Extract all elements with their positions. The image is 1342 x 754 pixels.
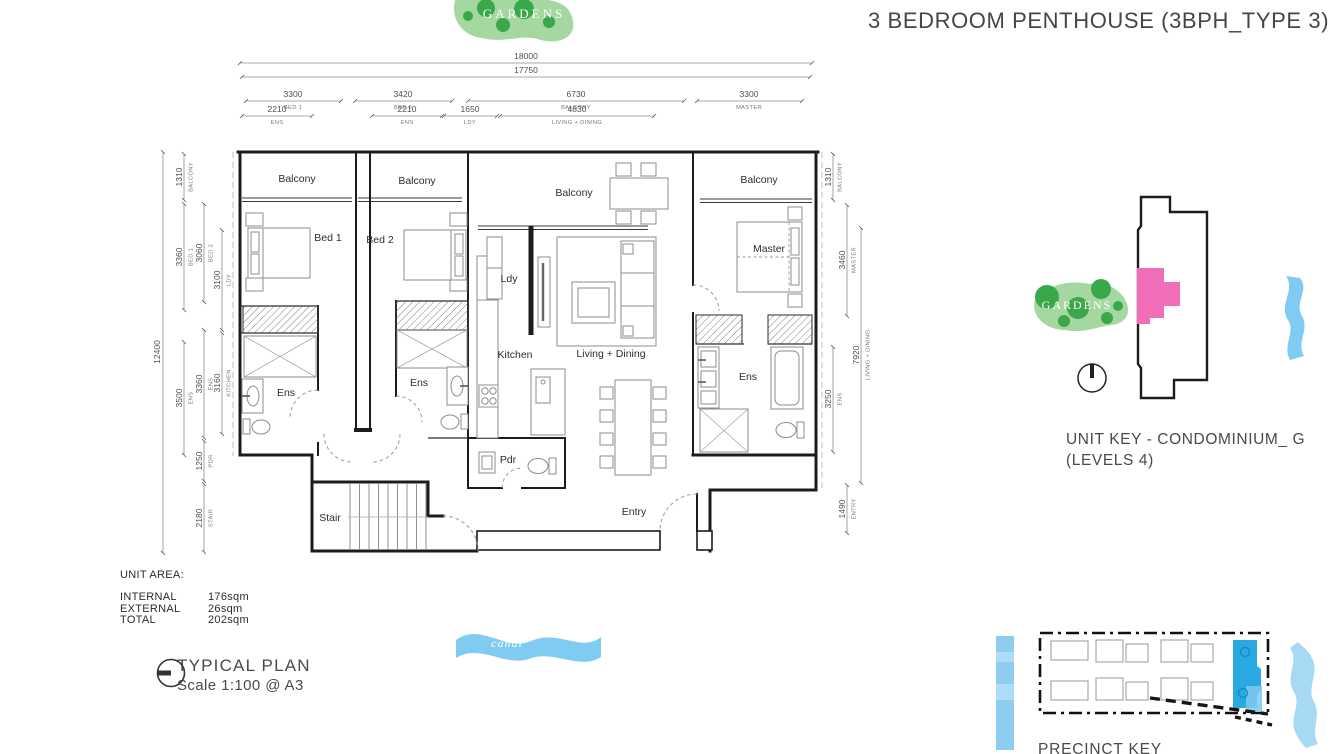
unit-area-row-total: TOTAL 202sqm bbox=[120, 615, 249, 627]
dim-12400: 12400 bbox=[152, 340, 162, 364]
bed-1-furniture bbox=[246, 213, 310, 291]
plan-drawing: GARDENS canal bbox=[0, 0, 1342, 754]
svg-text:4830: 4830 bbox=[568, 104, 587, 114]
canal-label: canal bbox=[491, 636, 523, 650]
svg-text:3060: 3060 bbox=[194, 243, 204, 262]
svg-text:PDR: PDR bbox=[209, 454, 215, 467]
svg-text:3360: 3360 bbox=[194, 374, 204, 393]
room-label-ens2: Ens bbox=[410, 377, 428, 389]
svg-text:3300: 3300 bbox=[740, 89, 759, 99]
ens2-door-arc bbox=[396, 396, 422, 422]
kitchen-furniture bbox=[477, 237, 565, 438]
svg-text:3300: 3300 bbox=[284, 89, 303, 99]
ens2-fixtures bbox=[397, 330, 468, 429]
room-label-stair: Stair bbox=[319, 512, 341, 524]
precinct-right-water-band bbox=[1290, 642, 1318, 748]
north-arrow-icon bbox=[1078, 364, 1106, 392]
dimensions-top: 18000 17750 3300BED 1 3420BED 2 6730BALC… bbox=[240, 51, 812, 126]
svg-text:BALCONY: BALCONY bbox=[189, 162, 195, 192]
svg-text:ENTRY: ENTRY bbox=[852, 498, 858, 519]
svg-text:7920: 7920 bbox=[851, 345, 861, 364]
outdoor-dining-set bbox=[610, 163, 668, 224]
svg-text:1490: 1490 bbox=[837, 499, 847, 518]
entry-door-arc bbox=[660, 494, 697, 531]
room-label-entry: Entry bbox=[622, 506, 647, 518]
key-canal-squiggle bbox=[1285, 276, 1305, 360]
stair-treads bbox=[348, 483, 428, 550]
svg-text:ENS: ENS bbox=[401, 120, 414, 126]
svg-text:2210: 2210 bbox=[268, 104, 287, 114]
gardens-label-key: GARDENS bbox=[1042, 298, 1113, 312]
svg-text:ENS: ENS bbox=[271, 120, 284, 126]
unit-area-block: UNIT AREA: INTERNAL 176sqm EXTERNAL 26sq… bbox=[120, 569, 249, 627]
dimensions-left: 12400 1310BALCONY 3360BED 1 3500ENS 3060… bbox=[152, 152, 233, 553]
plan-caption-title: TYPICAL PLAN bbox=[177, 656, 311, 676]
unit-key-caption: UNIT KEY - CONDOMINIUM_ G (LEVELS 4) bbox=[1066, 429, 1305, 471]
svg-text:3160: 3160 bbox=[212, 373, 222, 392]
room-label-balcony-master: Balcony bbox=[740, 174, 778, 186]
precinct-highlight-overlay bbox=[1246, 686, 1262, 712]
svg-text:6730: 6730 bbox=[567, 89, 586, 99]
svg-text:BED 2: BED 2 bbox=[209, 244, 215, 262]
bed1-door-arc bbox=[324, 434, 352, 462]
room-label-bed1: Bed 1 bbox=[314, 232, 342, 244]
unit-key-map: GARDENS bbox=[1034, 197, 1305, 398]
dim-17750: 17750 bbox=[514, 65, 538, 75]
pdr-door-arc bbox=[502, 468, 522, 488]
precinct-key-caption: PRECINCT KEY bbox=[1038, 741, 1162, 754]
dim-18000: 18000 bbox=[514, 51, 538, 61]
svg-text:KITCHEN: KITCHEN bbox=[227, 369, 233, 397]
room-label-master: Master bbox=[753, 243, 786, 255]
master-ens-fixtures bbox=[698, 347, 804, 452]
room-label-living-dining: Living + Dining bbox=[576, 348, 645, 360]
room-label-balcony-1: Balcony bbox=[278, 173, 316, 185]
svg-text:LDY: LDY bbox=[227, 274, 233, 286]
master-bed-furniture bbox=[737, 207, 802, 307]
master-door-arc bbox=[693, 285, 719, 311]
dimensions-right: 1310BALCONY 3460MASTER 3250ENS 7920LIVIN… bbox=[823, 154, 872, 533]
svg-text:1310: 1310 bbox=[174, 167, 184, 186]
svg-text:ENS: ENS bbox=[838, 393, 844, 406]
canal-blob-bottom: canal bbox=[456, 634, 601, 662]
entry-corridor-wall bbox=[477, 531, 660, 550]
room-label-bed2: Bed 2 bbox=[366, 234, 394, 246]
room-label-kitchen: Kitchen bbox=[497, 349, 532, 361]
svg-text:3100: 3100 bbox=[212, 270, 222, 289]
gardens-blob-top: GARDENS bbox=[454, 0, 574, 41]
wardrobes bbox=[243, 301, 812, 344]
precinct-key-map bbox=[996, 633, 1318, 750]
pdr-fixtures bbox=[479, 452, 556, 474]
unit-area-row-internal: INTERNAL 176sqm bbox=[120, 592, 249, 604]
balcony-glazing bbox=[242, 198, 812, 230]
precinct-buildings bbox=[1051, 640, 1213, 700]
svg-text:3250: 3250 bbox=[823, 389, 833, 408]
living-furniture bbox=[538, 237, 656, 346]
stair-door-arc bbox=[443, 516, 478, 551]
plan-orientation-icon bbox=[154, 656, 186, 690]
svg-text:2180: 2180 bbox=[194, 508, 204, 527]
svg-text:LIVING + DINING: LIVING + DINING bbox=[866, 330, 872, 381]
svg-text:MASTER: MASTER bbox=[852, 247, 858, 273]
svg-text:MASTER: MASTER bbox=[736, 105, 762, 111]
plan-caption-scale: Scale 1:100 @ A3 bbox=[177, 677, 311, 694]
svg-text:3460: 3460 bbox=[837, 250, 847, 269]
plan-caption: TYPICAL PLAN Scale 1:100 @ A3 bbox=[154, 656, 311, 694]
svg-text:STAIR: STAIR bbox=[209, 509, 215, 527]
dining-set bbox=[600, 380, 666, 475]
room-label-ens1: Ens bbox=[277, 387, 295, 399]
ens1-fixtures bbox=[242, 336, 316, 434]
bed-2-furniture bbox=[404, 213, 467, 291]
room-label-balcony-living: Balcony bbox=[555, 187, 593, 199]
svg-text:3420: 3420 bbox=[394, 89, 413, 99]
svg-text:LIVING + DINING: LIVING + DINING bbox=[552, 120, 603, 126]
svg-text:1650: 1650 bbox=[461, 104, 480, 114]
room-label-ldy: Ldy bbox=[501, 273, 519, 285]
room-label-balcony-2: Balcony bbox=[398, 175, 436, 187]
gardens-label-top: GARDENS bbox=[483, 6, 565, 21]
svg-text:1250: 1250 bbox=[194, 451, 204, 470]
room-label-pdr: Pdr bbox=[500, 454, 517, 466]
svg-text:LDY: LDY bbox=[464, 120, 476, 126]
svg-text:BED 1: BED 1 bbox=[284, 105, 302, 111]
svg-text:BALCONY: BALCONY bbox=[838, 162, 844, 192]
floorplan-sheet: GARDENS canal bbox=[0, 0, 1342, 754]
svg-text:1310: 1310 bbox=[823, 167, 833, 186]
page-title: 3 BEDROOM PENTHOUSE (3BPH_TYPE 3) bbox=[868, 8, 1329, 34]
unit-area-heading: UNIT AREA: bbox=[120, 569, 249, 581]
room-label-ens-master: Ens bbox=[739, 371, 757, 383]
svg-text:2210: 2210 bbox=[398, 104, 417, 114]
bed2-door-arc bbox=[372, 434, 400, 462]
svg-text:3360: 3360 bbox=[174, 247, 184, 266]
svg-text:3500: 3500 bbox=[174, 388, 184, 407]
